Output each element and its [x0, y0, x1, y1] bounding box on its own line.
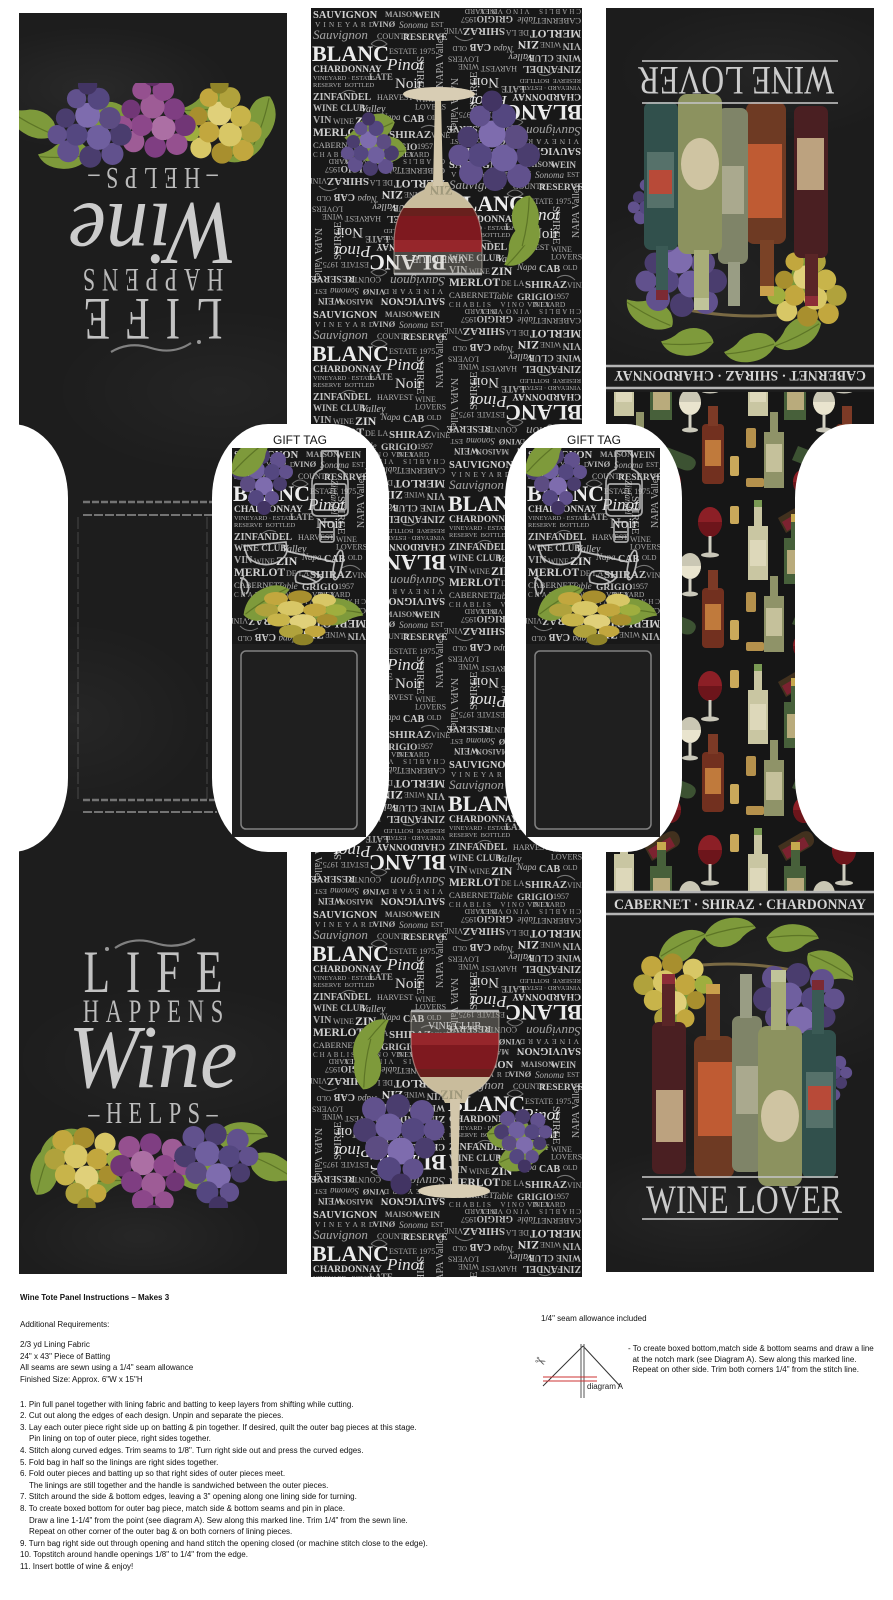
svg-text:✂: ✂	[535, 1352, 549, 1370]
svg-text:CABERNET · SHIRAZ · CHARDONNAY: CABERNET · SHIRAZ · CHARDONNAY	[614, 897, 866, 913]
svg-text:diagram A: diagram A	[587, 1382, 624, 1391]
svg-text:Zinfandel: Zinfandel	[329, 480, 339, 515]
svg-text:WINE LOVER: WINE LOVER	[646, 1177, 842, 1222]
svg-text:VINE CLUB: VINE CLUB	[428, 1021, 481, 1032]
